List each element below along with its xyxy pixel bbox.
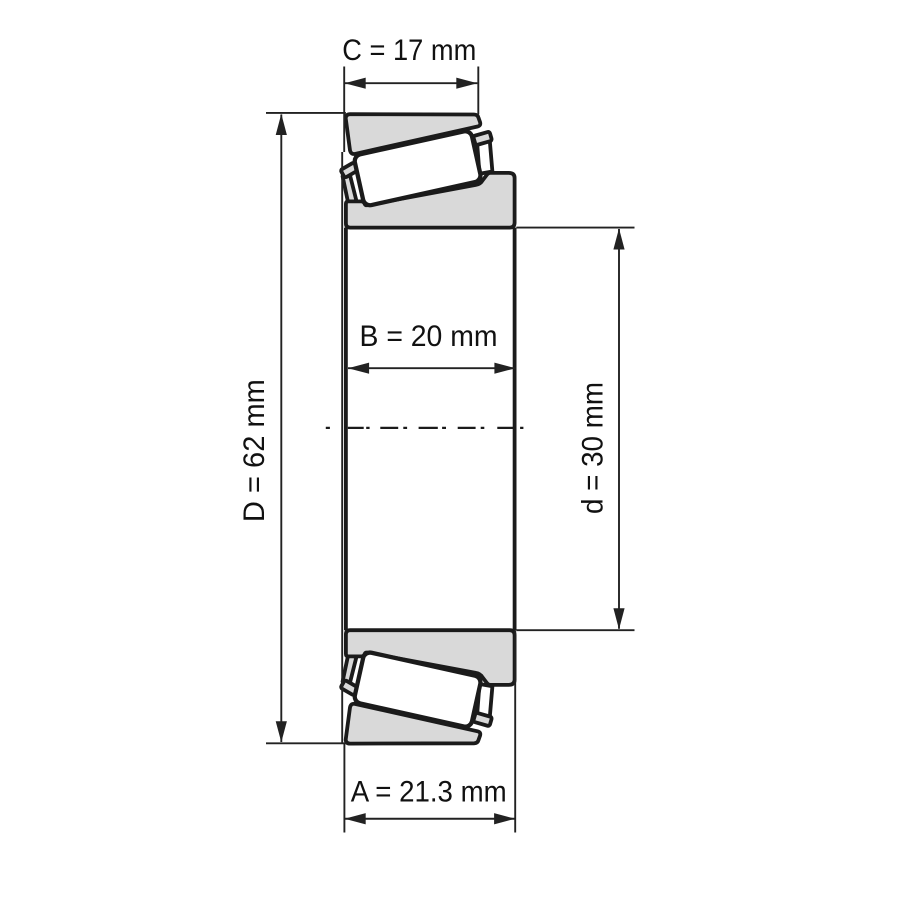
svg-text:A = 21.3 mm: A = 21.3 mm [351,776,507,809]
svg-text:D = 62 mm: D = 62 mm [238,379,271,522]
svg-text:d = 30 mm: d = 30 mm [576,382,609,514]
svg-text:B = 20 mm: B = 20 mm [360,320,498,353]
svg-text:C = 17 mm: C = 17 mm [342,34,476,67]
